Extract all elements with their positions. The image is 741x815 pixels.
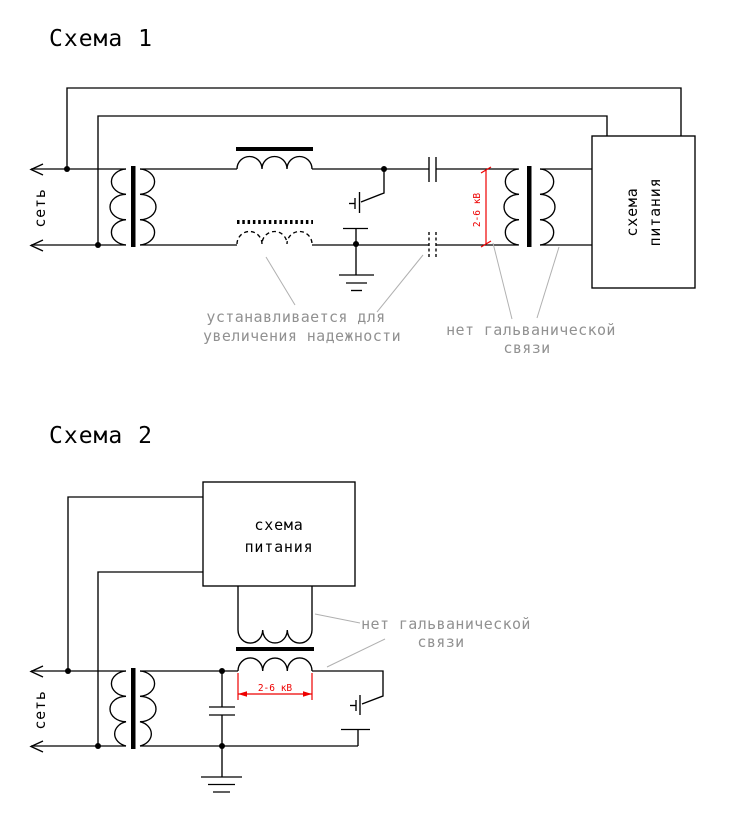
schema1-annotations: устанавливается для увеличения надежност… [203,243,616,357]
schema2-spark-gap [312,671,383,746]
schema2-note-isolation-1: нет гальванической [361,615,531,633]
schema1-coupling-capacitor [429,157,518,182]
leader-line [327,639,385,667]
circuit-diagram: Схема 1 сеть [0,0,741,815]
schema1-feedback-wires [64,88,681,248]
schema1-title: Схема 1 [49,26,153,52]
transformer-core [131,668,136,749]
schema1-power-box-label2: питания [646,178,664,247]
schema2-capacitor [209,671,235,746]
schema2-power-box: схема питания [203,482,355,586]
schema1-note-reliability-2: увеличения надежности [203,327,401,345]
schema1-isolation-transformer [110,166,156,247]
schema1-voltage-label: 2-6 кВ [472,193,483,228]
schema2-coupling-transformer [236,586,314,671]
leader-line [377,255,423,312]
schema1-note-isolation-2: связи [503,339,550,357]
schema1-voltage-dimension: 2-6 кВ [472,167,491,247]
schema1-note-isolation-1: нет гальванической [446,321,616,339]
schema2-note-isolation-2: связи [417,633,464,651]
schema2-rails [140,668,358,749]
transformer-core [527,166,532,247]
schema1-optional-capacitor [429,232,518,257]
schema2-title: Схема 2 [49,423,153,449]
schema1-spark-gap [343,166,387,247]
schema1-power-box-label1: схема [623,187,641,236]
schema2: Схема 2 схема питания сеть [31,423,531,792]
schema2-power-box-label2: питания [245,538,314,556]
schema2-mains: сеть [31,666,126,752]
schema1-note-reliability-1: устанавливается для [206,308,385,326]
schema2-power-box-label1: схема [254,516,303,534]
schema1-hv-transformer [504,166,592,247]
schema1-ground [339,245,374,291]
schema1: Схема 1 сеть [31,26,695,357]
schema2-ground [201,746,242,792]
schema2-annotations: нет гальванической связи [315,614,531,667]
leader-line [315,614,360,623]
leader-line [493,243,512,319]
schema1-mains-label: сеть [31,188,49,227]
diagram-page: Схема 1 сеть [0,0,741,815]
schema1-optional-choke [140,222,429,245]
schema2-voltage-label: 2-6 кВ [258,683,293,694]
schema2-mains-label: сеть [31,690,49,729]
leader-line [537,247,559,318]
schema1-power-box: схема питания [592,136,695,288]
schema2-isolation-transformer [110,668,156,749]
schema1-filter-choke [140,149,429,169]
transformer-core [131,166,136,247]
schema2-voltage-dimension: 2-6 кВ [238,673,312,700]
leader-line [266,257,295,305]
